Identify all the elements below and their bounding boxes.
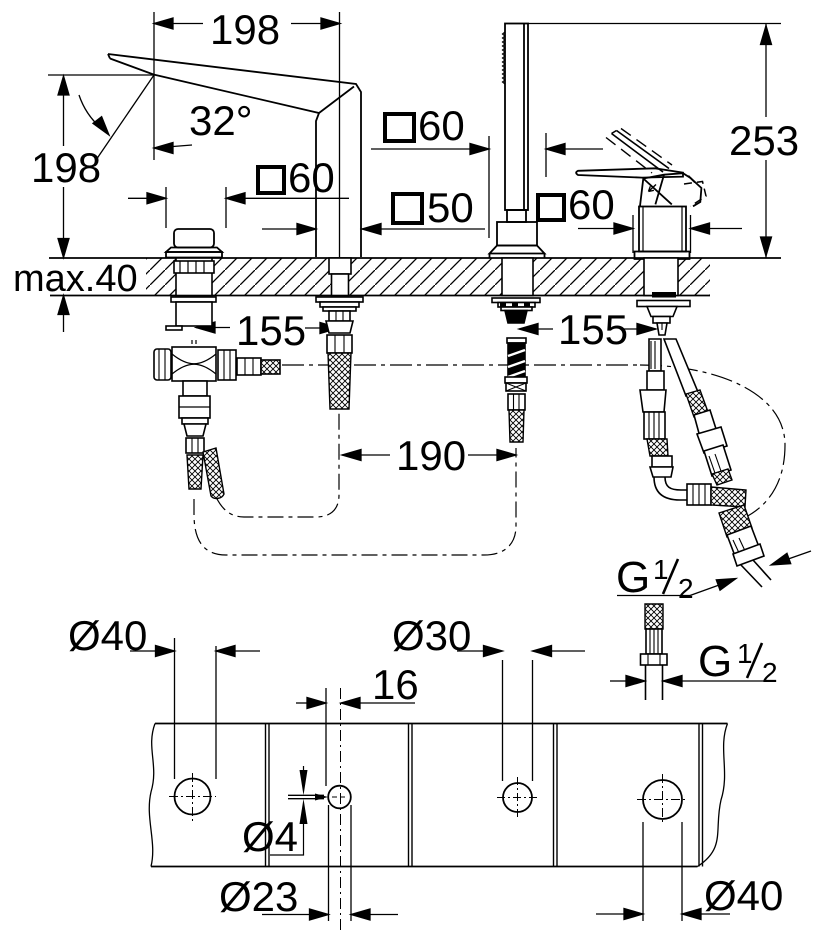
svg-text:max.40: max.40	[13, 258, 138, 300]
svg-text:Ø40: Ø40	[68, 612, 147, 659]
svg-text:1: 1	[737, 638, 753, 669]
svg-text:Ø23: Ø23	[219, 873, 298, 920]
svg-text:198: 198	[31, 144, 101, 191]
svg-text:60: 60	[288, 154, 335, 201]
svg-text:60: 60	[568, 181, 615, 228]
svg-text:32°: 32°	[189, 97, 253, 144]
svg-text:2: 2	[762, 657, 778, 688]
svg-text:Ø40: Ø40	[704, 872, 783, 919]
svg-text:198: 198	[210, 6, 280, 53]
svg-text:Ø4: Ø4	[242, 813, 298, 860]
svg-text:190: 190	[396, 432, 466, 479]
svg-text:1: 1	[653, 554, 669, 585]
svg-text:16: 16	[372, 661, 419, 708]
svg-text:G: G	[616, 553, 650, 602]
svg-text:G: G	[698, 637, 732, 686]
svg-text:50: 50	[427, 184, 474, 231]
svg-text:Ø30: Ø30	[392, 612, 471, 659]
svg-text:155: 155	[236, 307, 306, 354]
svg-text:155: 155	[558, 306, 628, 353]
svg-text:253: 253	[729, 117, 799, 164]
svg-text:2: 2	[678, 573, 694, 604]
svg-text:60: 60	[418, 102, 465, 149]
